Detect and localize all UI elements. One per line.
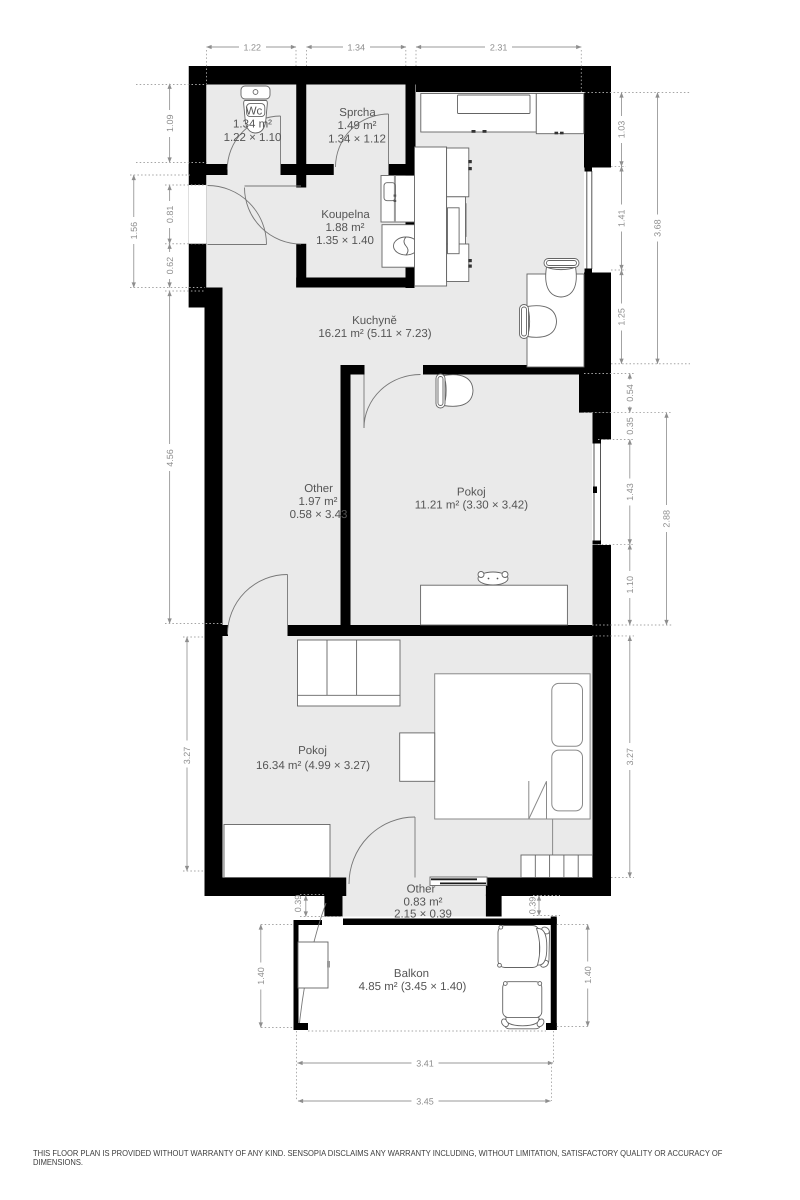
svg-text:0.62: 0.62 xyxy=(165,257,175,275)
svg-text:11.21 m² (3.30 × 3.42): 11.21 m² (3.30 × 3.42) xyxy=(415,500,528,512)
svg-text:Pokoj: Pokoj xyxy=(298,745,327,757)
svg-text:3.68: 3.68 xyxy=(653,219,663,237)
svg-text:1.49 m²: 1.49 m² xyxy=(338,120,377,132)
svg-text:4.56: 4.56 xyxy=(165,449,175,467)
svg-text:2.31: 2.31 xyxy=(490,42,508,52)
svg-text:1.40: 1.40 xyxy=(256,967,266,985)
svg-text:16.34 m² (4.99 × 3.27): 16.34 m² (4.99 × 3.27) xyxy=(256,760,370,772)
svg-text:0.54: 0.54 xyxy=(625,384,635,402)
svg-text:1.25: 1.25 xyxy=(617,308,627,326)
svg-text:1.41: 1.41 xyxy=(617,209,627,227)
svg-text:16.21 m² (5.11 × 7.23): 16.21 m² (5.11 × 7.23) xyxy=(318,328,431,340)
svg-text:1.34: 1.34 xyxy=(348,42,366,52)
svg-text:0.39: 0.39 xyxy=(293,895,303,913)
svg-text:Other: Other xyxy=(304,483,333,495)
svg-text:3.45: 3.45 xyxy=(416,1096,434,1106)
svg-text:1.35 × 1.40: 1.35 × 1.40 xyxy=(316,235,374,247)
svg-text:2.15 × 0.39: 2.15 × 0.39 xyxy=(394,908,452,920)
svg-text:Other: Other xyxy=(407,883,436,895)
svg-text:1.22 × 1.10: 1.22 × 1.10 xyxy=(224,132,282,144)
svg-text:4.85 m² (3.45 × 1.40): 4.85 m² (3.45 × 1.40) xyxy=(359,981,467,993)
svg-text:0.81: 0.81 xyxy=(165,206,175,224)
svg-text:1.43: 1.43 xyxy=(625,483,635,501)
svg-text:Kuchyně: Kuchyně xyxy=(352,315,397,327)
svg-text:0.35: 0.35 xyxy=(625,417,635,435)
svg-text:1.10: 1.10 xyxy=(625,576,635,594)
svg-text:Balkon: Balkon xyxy=(394,968,429,980)
svg-text:0.39: 0.39 xyxy=(528,897,538,915)
svg-text:1.34 m²: 1.34 m² xyxy=(233,119,272,131)
svg-text:0.83 m²: 0.83 m² xyxy=(404,896,443,908)
svg-text:Koupelna: Koupelna xyxy=(321,209,370,221)
svg-text:2.88: 2.88 xyxy=(662,510,672,528)
svg-text:1.34 × 1.12: 1.34 × 1.12 xyxy=(328,133,386,145)
svg-text:1.22: 1.22 xyxy=(244,42,262,52)
svg-text:1.40: 1.40 xyxy=(583,966,593,984)
svg-text:Sprcha: Sprcha xyxy=(339,107,376,119)
svg-text:1.03: 1.03 xyxy=(617,121,627,139)
svg-text:1.09: 1.09 xyxy=(165,114,175,132)
svg-text:1.56: 1.56 xyxy=(129,222,139,240)
svg-text:Wc: Wc xyxy=(246,106,263,118)
svg-text:3.41: 3.41 xyxy=(416,1058,434,1068)
svg-text:3.27: 3.27 xyxy=(625,748,635,766)
svg-text:Pokoj: Pokoj xyxy=(457,487,486,499)
svg-text:1.97 m²: 1.97 m² xyxy=(299,496,338,508)
svg-text:1.88 m²: 1.88 m² xyxy=(326,222,365,234)
svg-text:0.58 × 3.43: 0.58 × 3.43 xyxy=(290,509,348,521)
svg-text:3.27: 3.27 xyxy=(182,747,192,765)
